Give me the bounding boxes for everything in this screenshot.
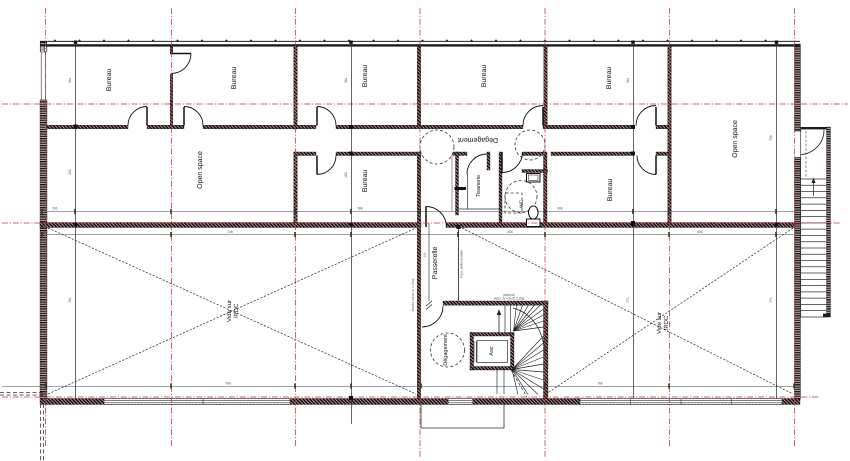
svg-text:/RDC: /RDC [233,303,240,318]
svg-text:186: 186 [344,172,348,178]
svg-text:738: 738 [227,230,233,234]
svg-text:Faux plafond dalle: Faux plafond dalle [460,250,464,278]
svg-text:306: 306 [507,230,513,234]
svg-text:361: 361 [344,77,348,83]
svg-text:Passerelle: Passerelle [431,247,439,280]
svg-text:Bureau: Bureau [607,179,614,202]
svg-text:Open space: Open space [197,151,204,189]
svg-text:306: 306 [557,207,563,211]
svg-text:781: 781 [68,297,72,303]
svg-text:ht(s) -2(+0sol) 2.20g: ht(s) -2(+0sol) 2.20g [494,297,525,301]
svg-text:Bureau: Bureau [231,67,238,90]
svg-text:Vide sur: Vide sur [656,312,663,334]
svg-text:Bureau: Bureau [362,65,369,88]
svg-text:306: 306 [697,230,703,234]
svg-text:Bureau: Bureau [106,69,113,92]
svg-text:281: 281 [52,207,58,211]
svg-text:771: 771 [769,297,773,303]
svg-text:756: 756 [769,135,773,141]
svg-text:786: 786 [597,382,603,386]
svg-text:186: 186 [357,207,363,211]
svg-text:Open space: Open space [732,120,739,158]
svg-text:Bureau: Bureau [362,170,369,193]
svg-text:786: 786 [225,382,231,386]
svg-text:Bureau: Bureau [481,65,488,88]
svg-text:771: 771 [626,297,630,303]
svg-text:361: 361 [626,77,630,83]
svg-text:Bureau: Bureau [606,67,613,90]
svg-text:/RDC: /RDC [663,315,670,330]
svg-text:361: 361 [68,77,72,83]
svg-text:Garde corps ht 1.00m: Garde corps ht 1.00m [411,278,415,311]
svg-text:111: 111 [423,252,427,257]
svg-text:Dégagement: Dégagement [442,334,449,366]
svg-text:Asc: Asc [489,346,495,355]
svg-text:352: 352 [68,169,72,175]
svg-text:Tisanerie: Tisanerie [476,175,482,197]
svg-text:Dégagement: Dégagement [458,136,498,144]
svg-text:WC: WC [519,199,525,208]
svg-text:Vide sur: Vide sur [226,300,233,322]
